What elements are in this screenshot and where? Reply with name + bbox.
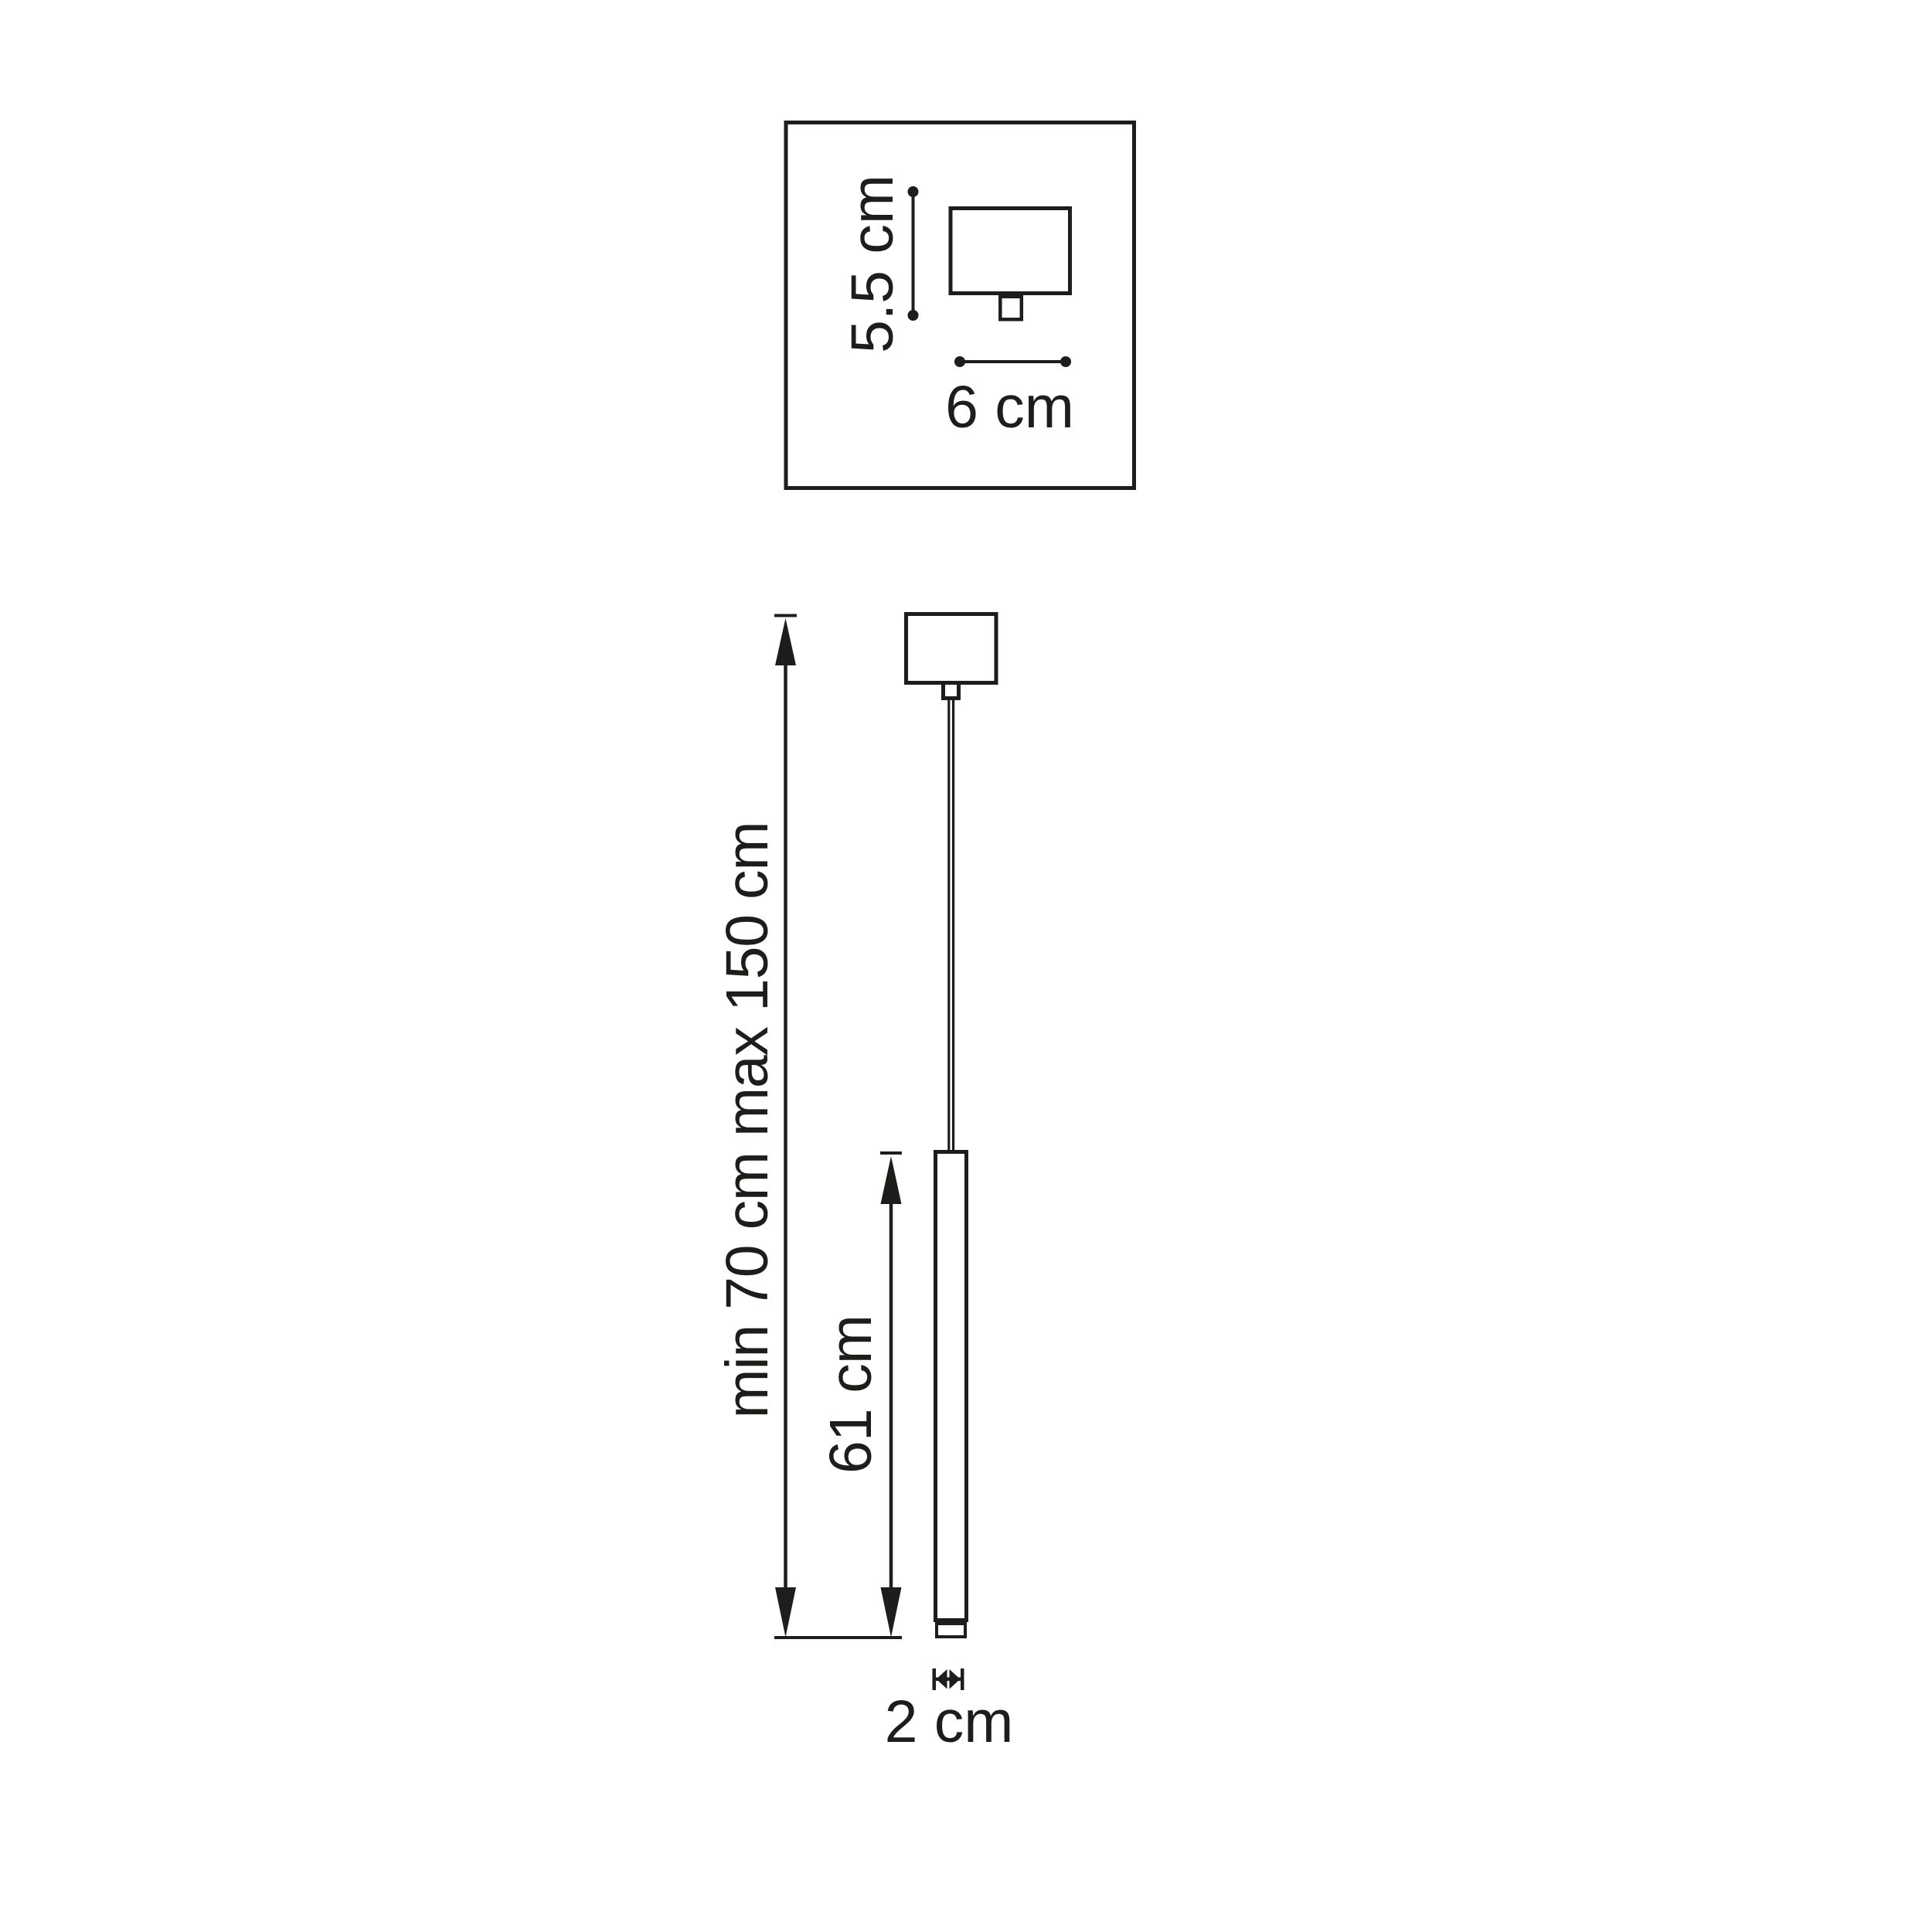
svg-text:2 cm: 2 cm — [885, 1689, 1014, 1755]
svg-text:6 cm: 6 cm — [945, 374, 1074, 440]
svg-text:min 70 cm max 150 cm: min 70 cm max 150 cm — [714, 821, 781, 1419]
svg-text:5.5 cm: 5.5 cm — [839, 175, 906, 353]
svg-text:61 cm: 61 cm — [818, 1315, 884, 1474]
